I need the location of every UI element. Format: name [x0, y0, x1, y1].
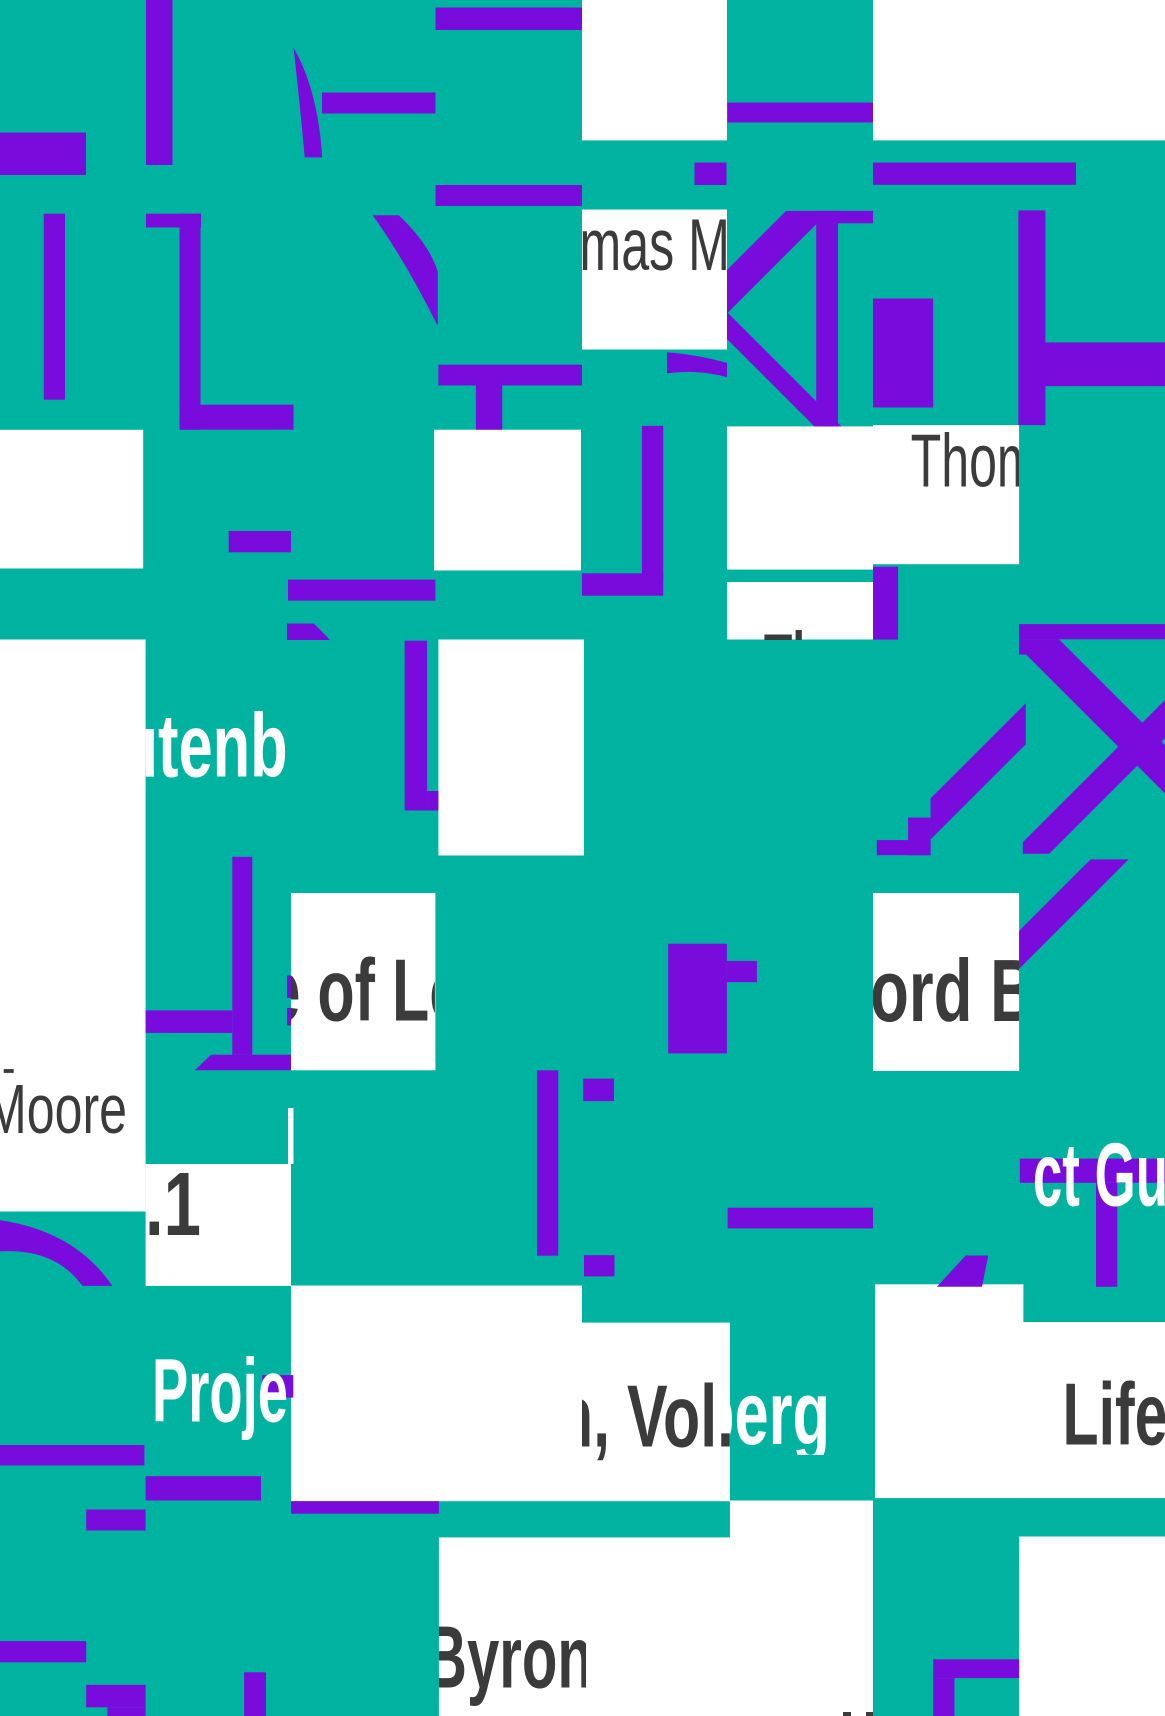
svg-text:Proje: Proje — [152, 1341, 288, 1441]
svg-text:n, Vol.: n, Vol. — [556, 1366, 734, 1465]
svg-text:ord B: ord B — [870, 941, 1036, 1040]
svg-text:Life: Life — [1063, 1365, 1165, 1464]
svg-text:Byron: Byron — [425, 1607, 593, 1706]
svg-text:mas M: mas M — [579, 205, 730, 286]
svg-text:Moore: Moore — [0, 1070, 127, 1148]
svg-text:.1: .1 — [145, 1155, 201, 1255]
svg-text:ct Gut: ct Gut — [1033, 1125, 1165, 1225]
